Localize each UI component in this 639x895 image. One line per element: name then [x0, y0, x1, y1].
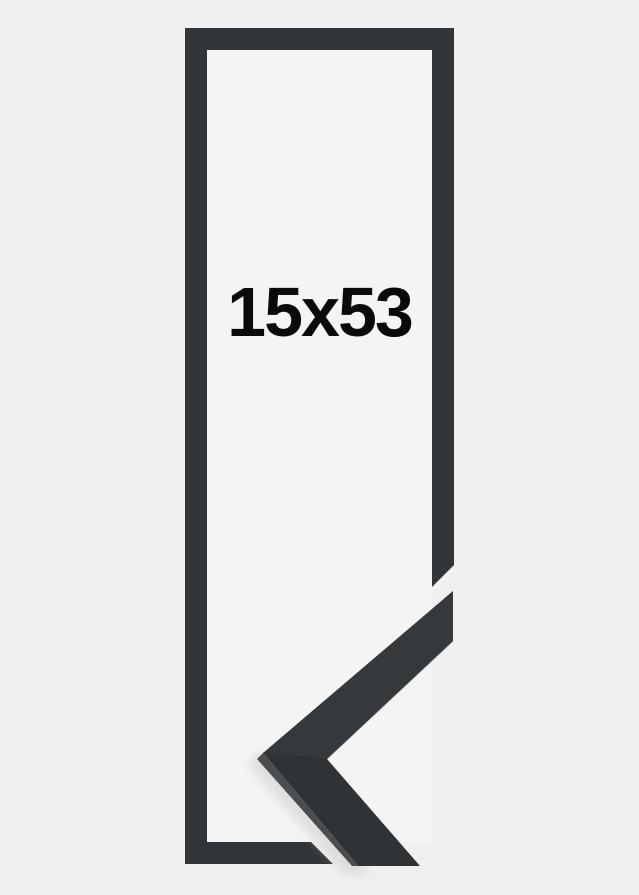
frame-right-bar	[432, 28, 454, 587]
frame-top-bar	[185, 28, 454, 50]
frame-bottom-bar	[185, 842, 333, 864]
frame-size-label: 15x53	[207, 256, 432, 368]
frame-graphic	[0, 0, 639, 895]
product-image: 15x53	[0, 0, 639, 895]
frame-left-bar	[185, 28, 207, 864]
